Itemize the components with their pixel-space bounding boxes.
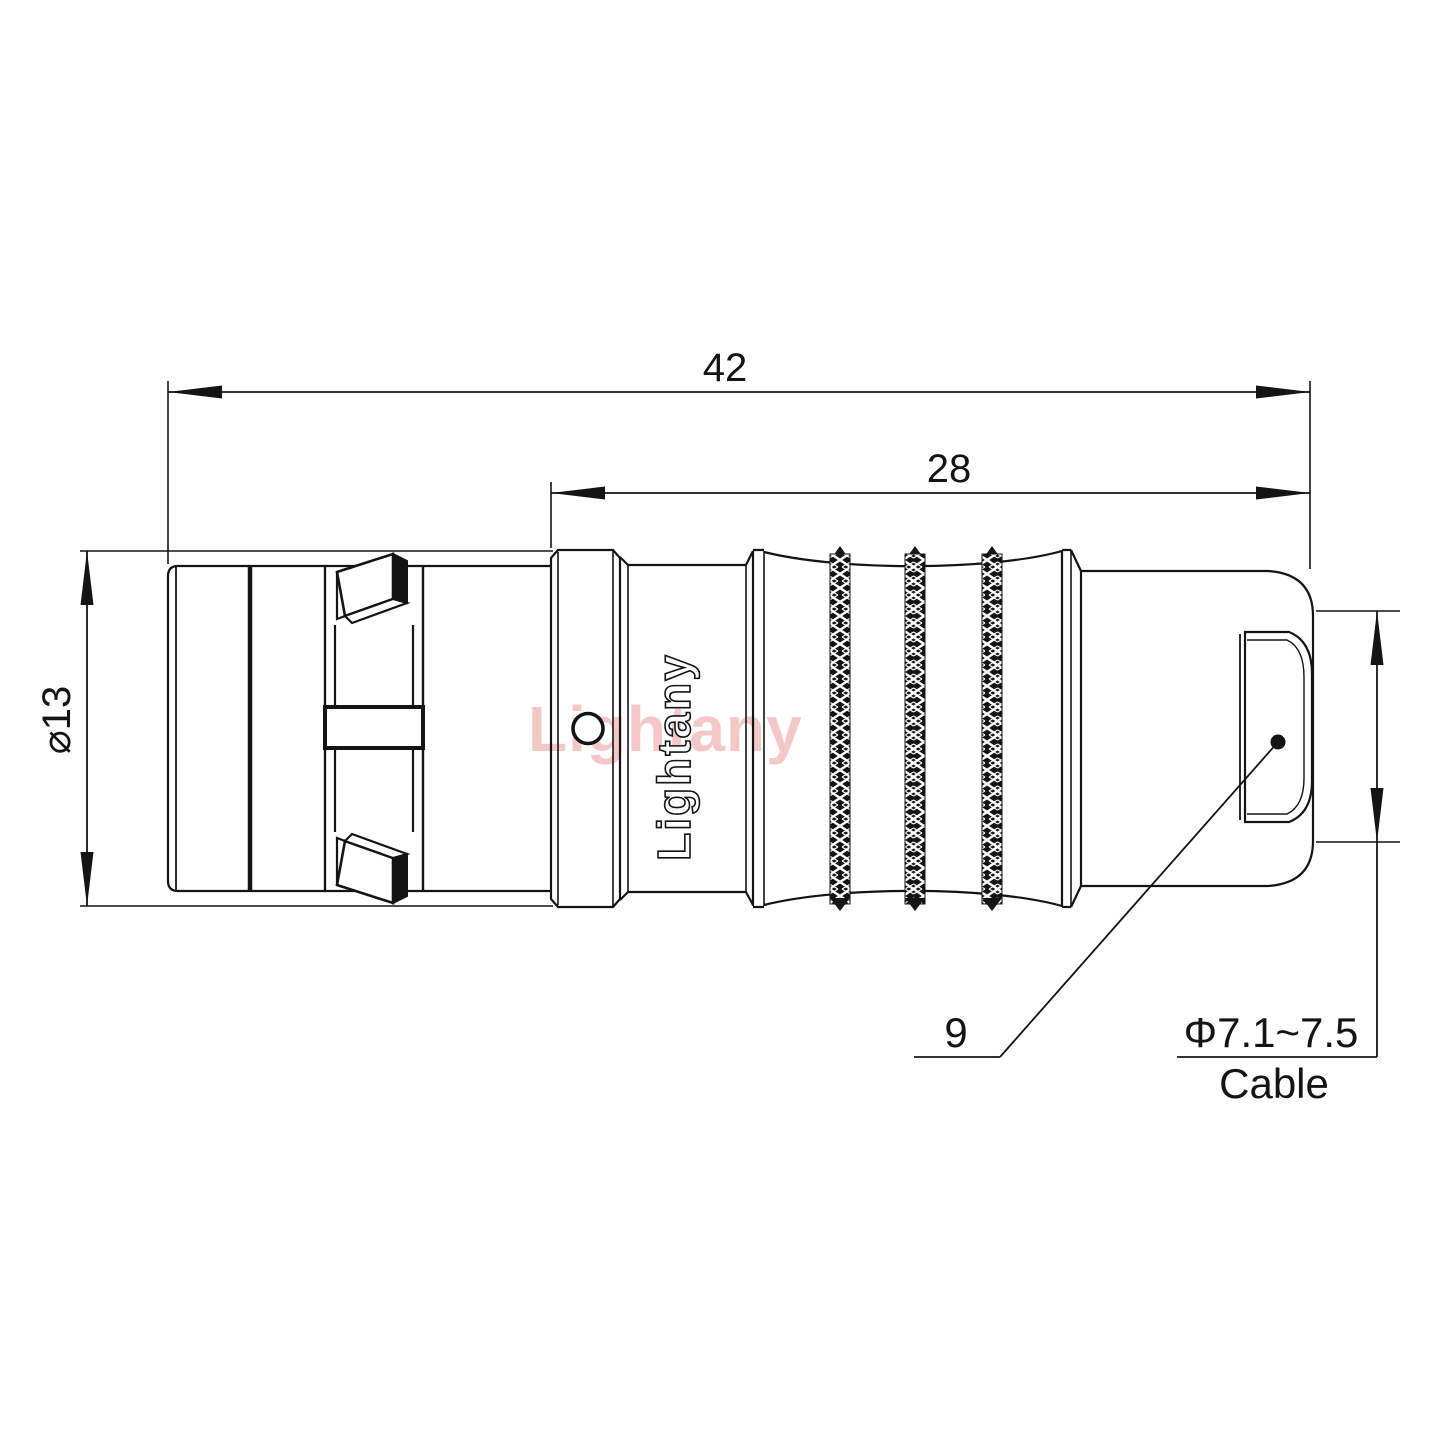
knurl-band-2 (905, 546, 925, 911)
technical-drawing-canvas: Lightany Lightany (0, 0, 1440, 1440)
latch-window-bar (325, 707, 423, 748)
dimension-overall-length: 42 (168, 346, 1310, 569)
knurl-band-3 (982, 546, 1002, 911)
connector-drawing: Lightany Lightany (0, 0, 1440, 1440)
dim-body-diameter-value: ⌀13 (35, 686, 79, 755)
dim-overall-length-value: 42 (703, 346, 748, 390)
dim-cable-diameter-value: Φ7.1~7.5 (1184, 1009, 1359, 1056)
cable-label: Cable (1219, 1060, 1329, 1107)
vent-hole (573, 714, 603, 744)
cable-entry-ref-value: 9 (944, 1009, 967, 1056)
engraved-brand-text: Lightany (648, 653, 700, 861)
cable-entry-boss (1240, 632, 1312, 822)
dimension-body-diameter: ⌀13 (35, 551, 94, 906)
knurl-band-1 (830, 546, 850, 911)
dimension-rear-length: 28 (551, 447, 1310, 548)
dim-rear-length-value: 28 (927, 447, 972, 491)
